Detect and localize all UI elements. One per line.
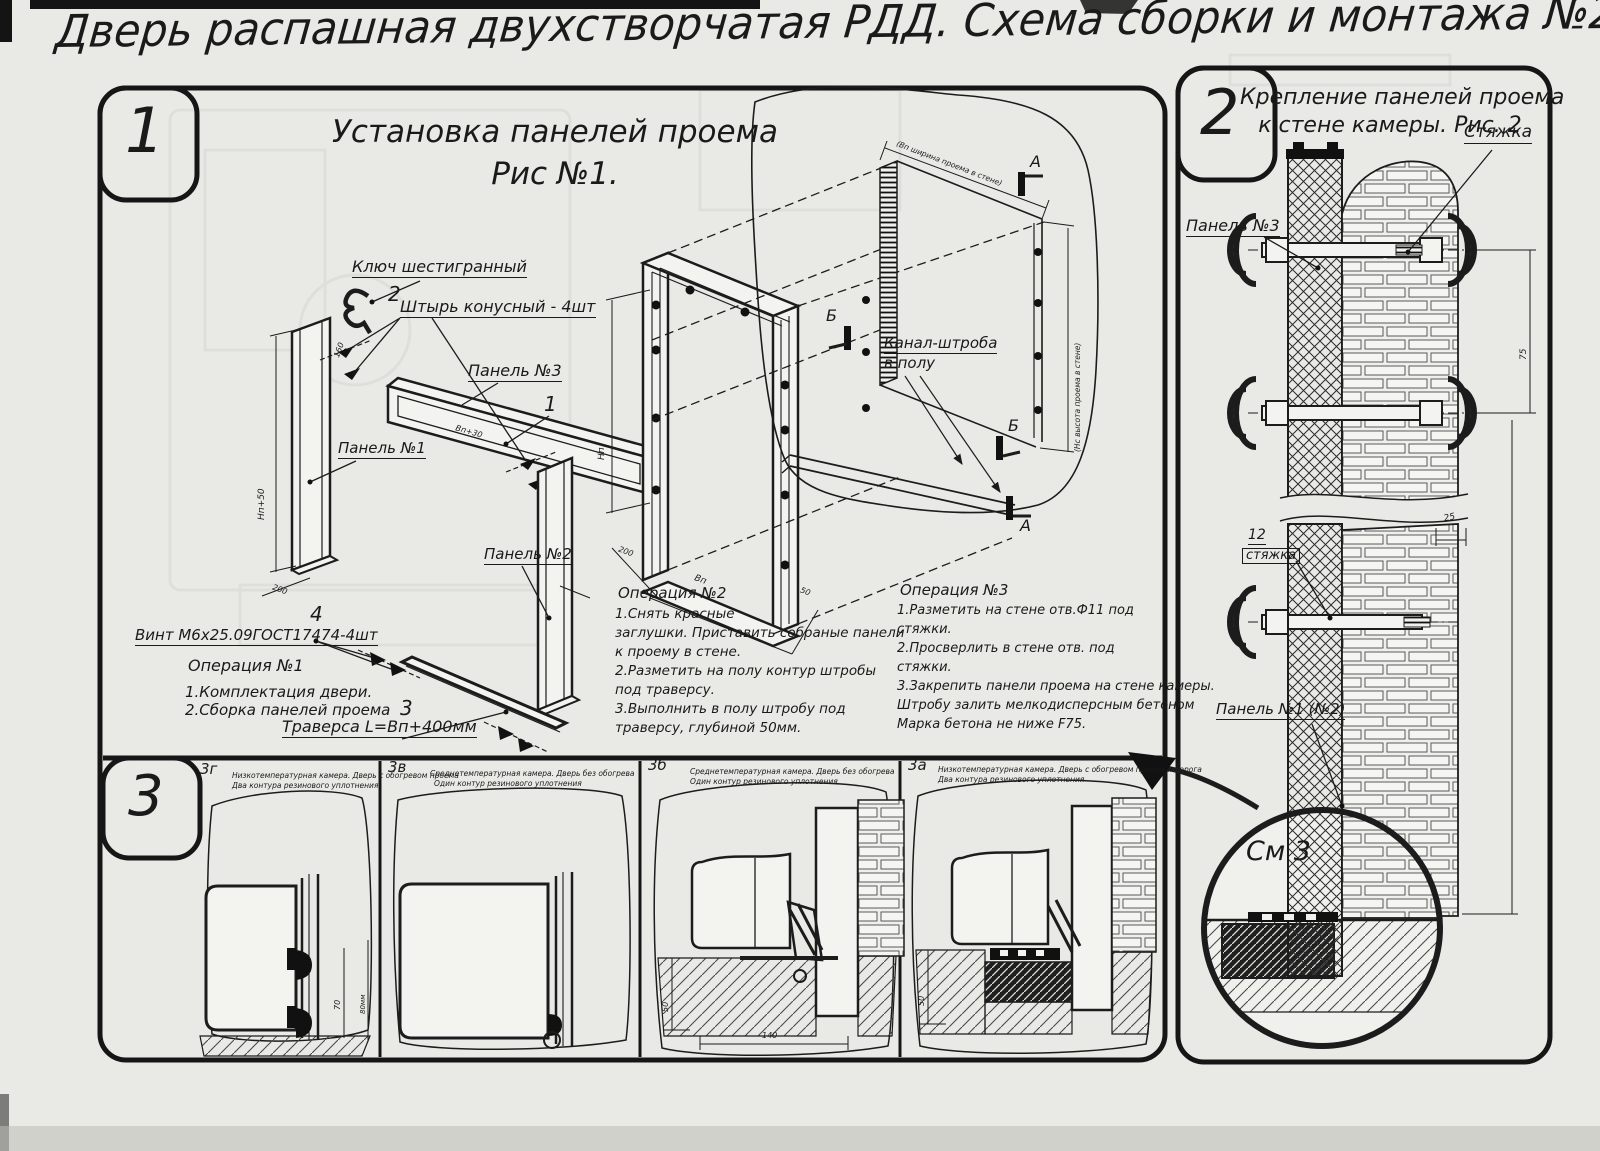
callout-1: 1 [544, 394, 557, 415]
dim-3g-80: 80мм [360, 944, 367, 1014]
wall-fixing-view [1128, 142, 1536, 1050]
label-traverse: Траверса L=Вп+400мм [282, 719, 477, 738]
subpanel-3g-id: 3г [200, 762, 217, 778]
op3-line: 2.Просверлить в стене отв. под [897, 642, 1115, 656]
section-marker-a-top: А [1030, 154, 1041, 171]
section-marker-b-right: Б [1008, 418, 1019, 435]
op2-line: 1.Снять красные [615, 607, 735, 621]
label-hex-key: Ключ шестигранный [352, 259, 527, 278]
label-screw: Винт М6х25.09ГОСТ17474-4шт [135, 628, 378, 646]
section1-heading: Установка панелей проема [330, 116, 780, 149]
op3-line: Штробу залить мелкодисперсным бетоном [897, 699, 1194, 713]
section3-badge: 3 [128, 768, 164, 827]
label-panel-2: Панель №2 [484, 547, 572, 565]
subpanel-3v-id: 3в [388, 760, 406, 776]
subpanel-3b-caption-2: Один контур резинового уплотнения [690, 778, 838, 786]
label-floor-channel-2: в полу [884, 356, 935, 372]
label-panel-3-s2: Панель №3 [1186, 218, 1280, 237]
dim-np: Нп [598, 340, 607, 460]
subpanel-3g-caption-1: Низкотемпературная камера. Дверь с обогр… [232, 772, 459, 780]
threshold-3b [654, 783, 904, 1056]
label-tie12: стяжка [1242, 548, 1300, 564]
label-floor-channel-1: Канал-штроба [884, 336, 997, 354]
dim-75: 75 [1520, 270, 1529, 360]
subpanel-3b-id: 3б [648, 758, 667, 774]
label-panel-1-2: Панель №1 (№2) [1216, 702, 1345, 720]
dim-np50: Нп+50 [258, 340, 267, 520]
dim-3b-50: 50 [662, 952, 670, 1012]
callout-2: 2 [388, 284, 401, 305]
label-panel-3: Панель №3 [468, 363, 562, 382]
scanned-assembly-drawing: Дверь распашная двухстворчатая РДД. Схем… [0, 0, 1600, 1151]
subpanel-3v-caption-1: Среднетемпературная камера. Дверь без об… [430, 770, 635, 778]
dim-3b-140: 140 [762, 1032, 777, 1040]
callout-3: 3 [400, 698, 413, 719]
op2-line: 2.Разметить на полу контур штробы [615, 664, 876, 678]
threshold-3v [394, 788, 630, 1049]
section2-badge: 2 [1200, 80, 1239, 145]
op2-line: под траверсу. [615, 683, 715, 697]
subpanel-3a-caption-1: Низкотемпературная камера. Дверь с обогр… [938, 766, 1202, 774]
op2-title: Операция №2 [618, 586, 726, 602]
op3-title: Операция №3 [900, 583, 1008, 599]
section-marker-b-left: Б [826, 308, 837, 325]
label-see-detail-3: См 3 [1246, 838, 1311, 866]
op2-line: 3.Выполнить в полу штробу под [615, 702, 846, 716]
op1-line: 2.Сборка панелей проема [185, 703, 390, 719]
drawing-canvas [0, 0, 1600, 1151]
op2-line: траверсу, глубиной 50мм. [615, 721, 801, 735]
dim-3a-50: 50 [918, 946, 926, 1006]
note-wall-height: (Нс высота проема в стене) [1074, 242, 1082, 452]
op1-line: 1.Комплектация двери. [185, 685, 372, 701]
op2-line: к проему в стене. [615, 645, 741, 659]
label-cone-pin: Штырь конусный - 4шт [400, 299, 596, 318]
label-tie: Стяжка [1464, 124, 1532, 144]
section-marker-a-bottom: А [1020, 518, 1031, 535]
subpanel-3a-caption-2: Два контура резинового уплотнения [938, 776, 1084, 784]
section2-heading: Крепление панелей проема [1240, 86, 1540, 109]
threshold-3g [200, 791, 371, 1056]
subpanel-3b-caption-1: Среднетемпературная камера. Дверь без об… [690, 768, 895, 776]
op3-line: стяжки. [897, 661, 952, 675]
callout-4: 4 [310, 604, 323, 625]
subpanel-3g-caption-2: Два контура резинового уплотнения [232, 782, 378, 790]
threshold-3a [912, 780, 1156, 1053]
subpanel-3a-id: 3а [908, 758, 927, 774]
subpanel-3v-caption-2: Один контур резинового уплотнения [434, 780, 582, 788]
dim-3g-70: 70 [334, 950, 342, 1010]
section1-heading-fig: Рис №1. [330, 158, 780, 191]
op2-line: заглушки. Приставить собраные панели [615, 626, 905, 640]
op1-title: Операция №1 [188, 658, 304, 675]
op3-line: 3.Закрепить панели проема на стене камер… [897, 680, 1215, 694]
section1-badge: 1 [125, 98, 164, 163]
label-panel-1: Панель №1 [338, 441, 426, 459]
op3-line: 1.Разметить на стене отв.Ф11 под [897, 604, 1134, 618]
op3-line: стяжки. [897, 623, 952, 637]
op3-line: Марка бетона не ниже F75. [897, 718, 1086, 732]
label-tie12-number: 12 [1248, 528, 1266, 545]
